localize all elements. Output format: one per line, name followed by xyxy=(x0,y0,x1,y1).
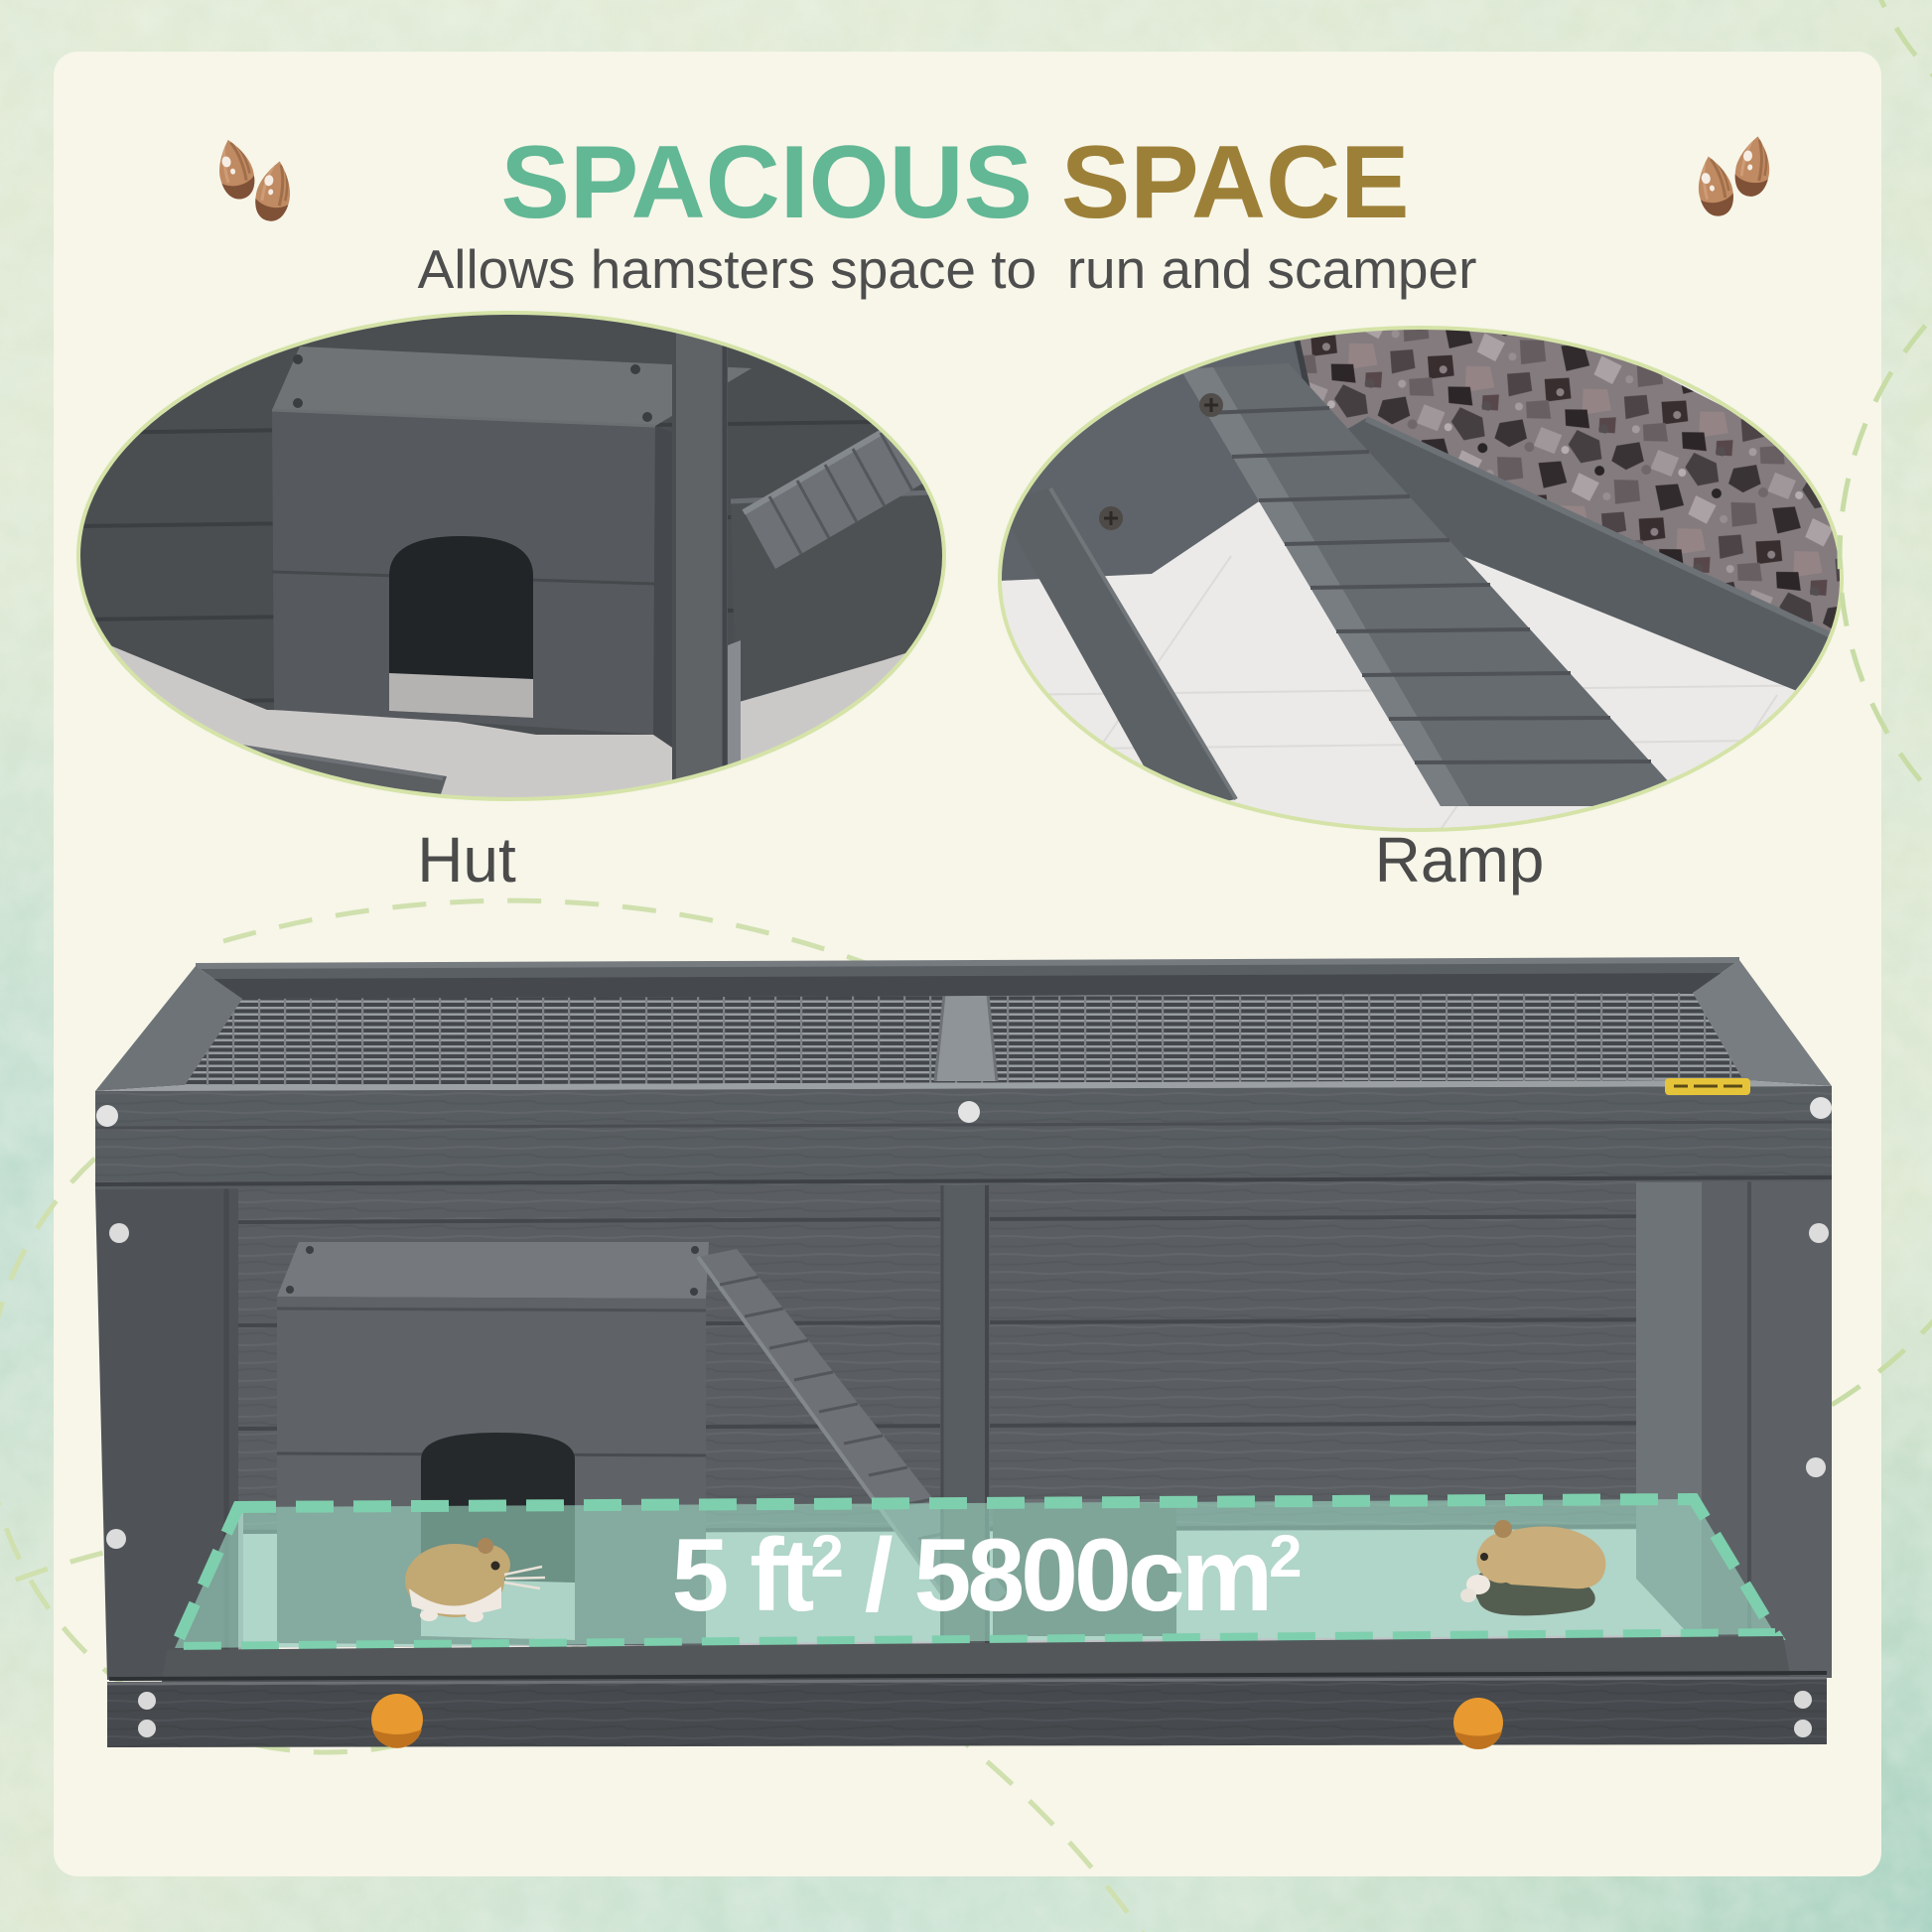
svg-text:5 ft2 / 5800cm2: 5 ft2 / 5800cm2 xyxy=(671,1518,1300,1633)
svg-text:SPACIOUS SPACE: SPACIOUS SPACE xyxy=(501,125,1410,240)
svg-text:Allows hamsters space to run: Allows hamsters space to run and scamper xyxy=(418,238,1477,300)
svg-text:Ramp: Ramp xyxy=(1375,824,1545,896)
svg-text:Hut: Hut xyxy=(417,824,516,896)
